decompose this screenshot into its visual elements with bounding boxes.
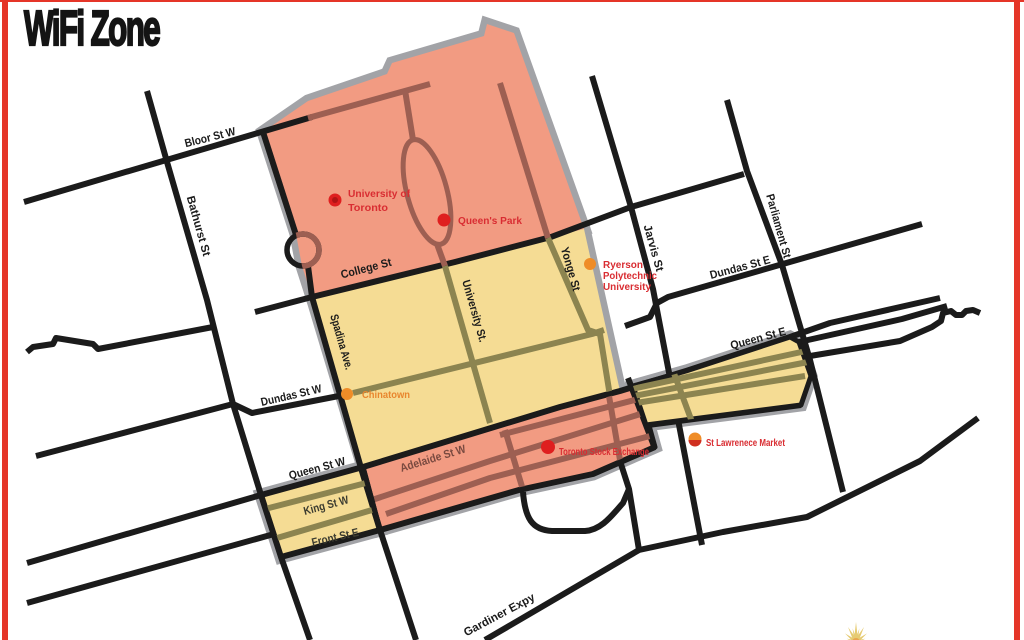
svg-text:Toronto Stock Exchange: Toronto Stock Exchange	[559, 446, 649, 458]
svg-text:Chinatown: Chinatown	[362, 389, 410, 401]
svg-text:Toronto: Toronto	[348, 202, 388, 214]
svg-text:Queen's Park: Queen's Park	[458, 215, 522, 227]
svg-text:University: University	[603, 281, 651, 293]
svg-text:University of: University of	[348, 188, 410, 200]
svg-text:St Lawrenece Market: St Lawrenece Market	[706, 437, 785, 449]
